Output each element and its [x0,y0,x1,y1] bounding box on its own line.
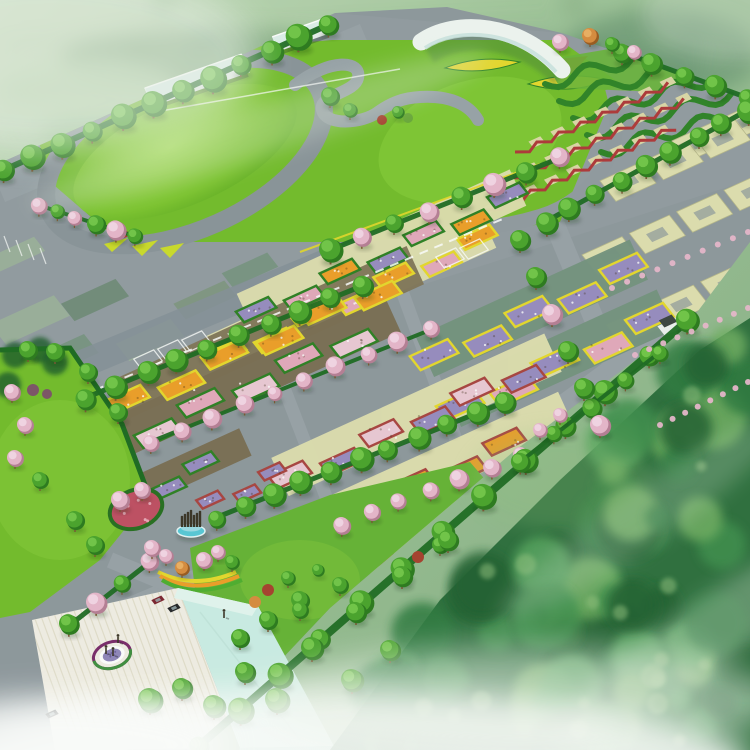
mist-overlay [0,0,750,750]
masterplan-rendering [0,0,750,750]
masterplan-canvas [0,0,750,750]
